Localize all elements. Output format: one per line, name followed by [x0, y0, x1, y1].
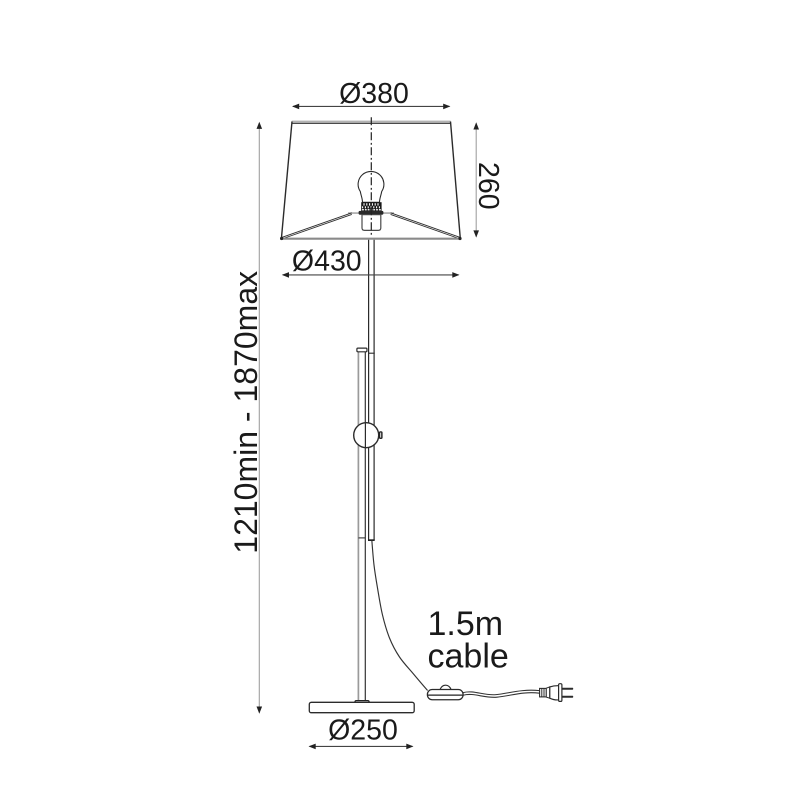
svg-text:Ø430: Ø430 — [292, 245, 362, 277]
svg-text:cable: cable — [428, 638, 509, 676]
svg-text:Ø380: Ø380 — [339, 78, 409, 110]
svg-text:Ø250: Ø250 — [328, 715, 398, 747]
svg-text:260: 260 — [472, 162, 504, 210]
svg-text:1210min - 1870max: 1210min - 1870max — [228, 271, 264, 554]
